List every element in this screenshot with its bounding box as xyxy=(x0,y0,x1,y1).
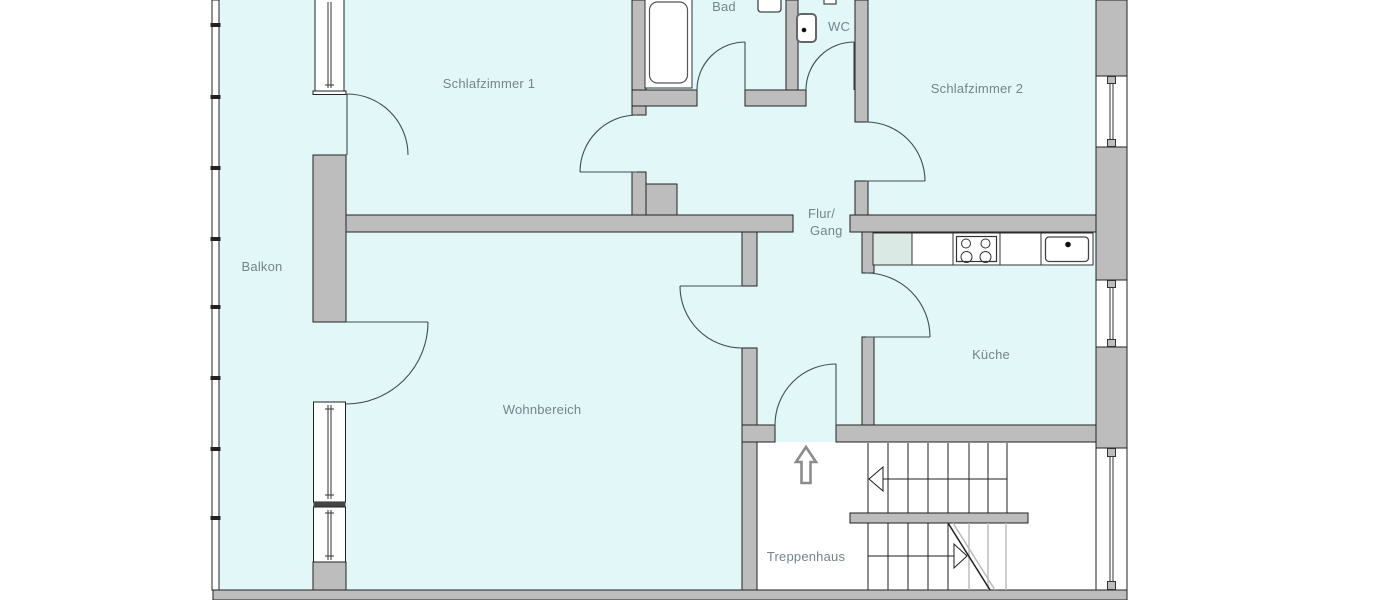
cistern-icon xyxy=(824,0,836,4)
window-wohnbereich-1 xyxy=(314,402,346,502)
floor-plan: Balkon Schlafzimmer 1 Bad WC Schlafzimme… xyxy=(0,0,1400,600)
room-label-flur-line2: Gang xyxy=(810,223,843,238)
kitchen-counter xyxy=(873,233,1093,265)
wall-bottom xyxy=(213,590,1127,600)
window-wohnbereich-2 xyxy=(314,507,346,562)
window-divider xyxy=(314,502,346,507)
wall-wc-right xyxy=(855,0,868,122)
wall-balcony-mid xyxy=(313,155,346,322)
room-label-kueche: Küche xyxy=(972,347,1010,362)
wall-sz2-left-lower xyxy=(855,181,868,216)
wall-kitchen-left-upper xyxy=(862,232,874,273)
window-schlafzimmer1 xyxy=(313,0,346,95)
wall-right-2 xyxy=(1096,147,1127,280)
wall-wohnbereich-right-upper xyxy=(742,232,757,286)
wall-kitchen-top xyxy=(850,215,1096,232)
room-label-treppenhaus: Treppenhaus xyxy=(767,549,845,564)
room-label-bad: Bad xyxy=(712,0,736,14)
wall-entry-right xyxy=(836,425,1127,442)
wall-wohnbereich-right-lower xyxy=(742,348,757,425)
wall-stairwell-left xyxy=(742,442,757,590)
wall-bad-bottom-left xyxy=(632,90,697,106)
room-label-schlafzimmer2: Schlafzimmer 2 xyxy=(931,81,1023,96)
balcony-railing xyxy=(211,0,221,590)
room-label-wohnbereich: Wohnbereich xyxy=(503,402,582,417)
wall-wohnbereich-top xyxy=(346,215,793,232)
wall-corridor-step-b xyxy=(646,184,677,215)
floor-plan-drawing xyxy=(0,0,1400,600)
wall-right-3 xyxy=(1096,347,1127,448)
room-label-balkon: Balkon xyxy=(242,259,283,274)
room-label-wc: WC xyxy=(828,19,850,34)
window-schlafzimmer2 xyxy=(1096,76,1127,147)
toilet-icon xyxy=(797,14,816,42)
stairs-landing-band xyxy=(850,513,1028,523)
wall-entry-left xyxy=(742,425,775,442)
wall-bad-bottom-mid xyxy=(745,90,806,106)
window-treppenhaus xyxy=(1096,448,1127,590)
washbasin-icon xyxy=(758,0,781,12)
counter-segment xyxy=(873,233,912,265)
wall-kitchen-left-lower xyxy=(862,337,874,425)
wall-bad-wc-divider xyxy=(786,0,798,90)
room-label-flur-line1: Flur/ xyxy=(808,206,835,221)
wall-balcony-bottom xyxy=(313,562,346,590)
wall-corridor-step-a xyxy=(632,172,646,215)
bathtub-icon xyxy=(645,0,692,88)
wall-right-1 xyxy=(1096,0,1127,76)
window-kueche xyxy=(1096,280,1127,347)
sink-icon xyxy=(1046,237,1089,262)
room-label-schlafzimmer1: Schlafzimmer 1 xyxy=(443,76,535,91)
